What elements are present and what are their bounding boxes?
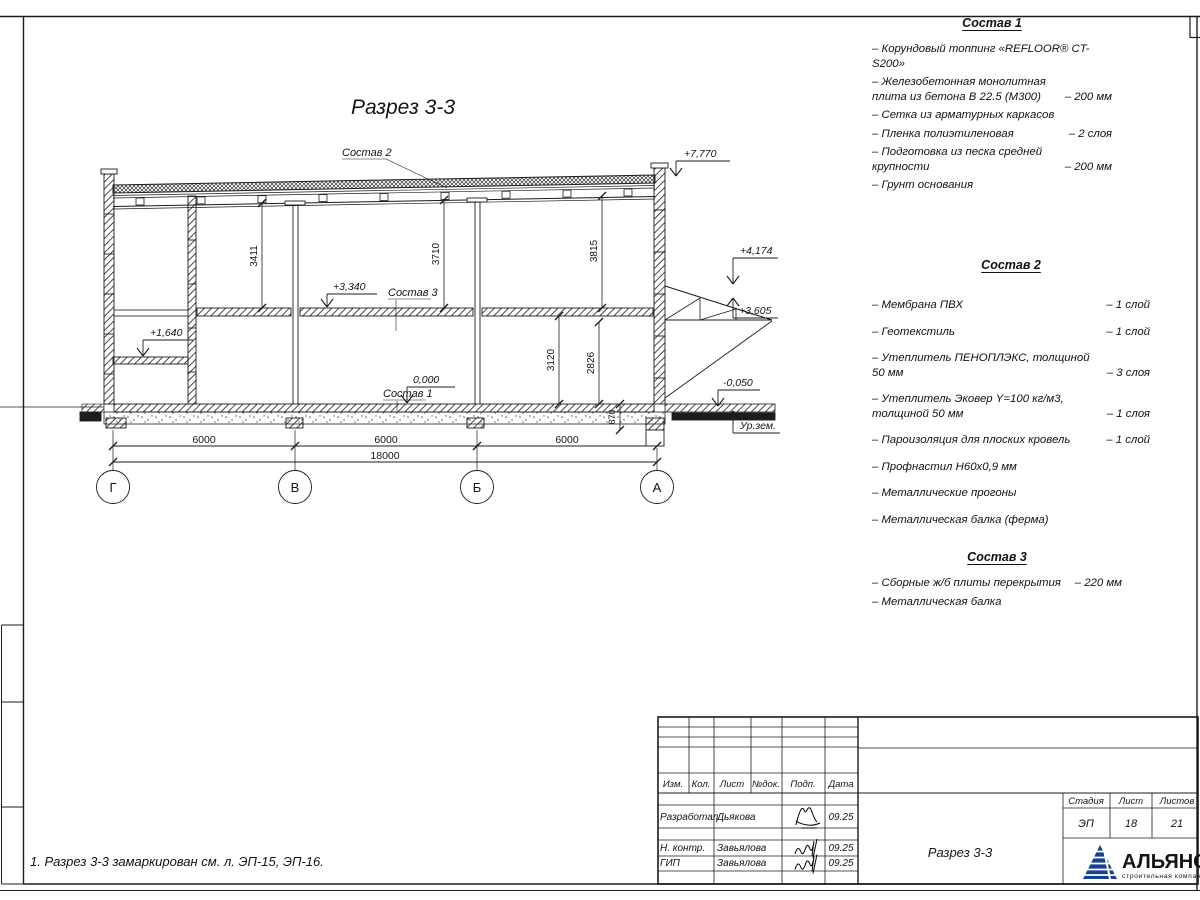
item-value: – 1 слой xyxy=(1098,298,1150,313)
elevation-canopy-bottom: +3,605 xyxy=(739,305,772,317)
axis-v: В xyxy=(291,480,300,495)
stamp-list-val: 18 xyxy=(1125,818,1138,830)
item-value: – 3 слоя xyxy=(1099,366,1150,381)
item-name: – Геотекстиль xyxy=(872,325,955,340)
list-item: – Пленка полиэтиленовая– 2 слоя xyxy=(872,127,1112,142)
drawing-sheet: Разрез 3-3 Состав 2 Состав 3 Состав 1 +7… xyxy=(0,0,1200,900)
item-name: – Утеплитель Эковер Y=100 кг/м3, толщино… xyxy=(872,392,1099,421)
label-sostav2: Состав 2 xyxy=(342,147,392,159)
sheet-note: 1. Разрез 3-3 замаркирован см. л. ЭП-15,… xyxy=(30,854,324,869)
item-name: – Утеплитель ПЕНОПЛЭКС, толщиной 50 мм xyxy=(872,351,1099,380)
list-item: – Профнастил Н60х0,9 мм xyxy=(872,460,1150,475)
elevation-slab: +3,340 xyxy=(333,281,366,293)
composition-2-block: Состав 2 – Мембрана ПВХ– 1 слой – Геотек… xyxy=(872,258,1150,539)
stamp-row2-name: Завьялова xyxy=(717,858,767,869)
elevation-zero: 0,000 xyxy=(413,374,439,386)
list-item: – Корундовый топпинг «REFLOOR® CT-S200» xyxy=(872,42,1112,71)
signature-icon xyxy=(795,839,817,858)
interior-wall xyxy=(188,196,196,404)
composition-3-block: Состав 3 – Сборные ж/б плиты перекрытия–… xyxy=(872,550,1122,613)
item-name: – Железобетонная монолитная плита из бет… xyxy=(872,75,1057,104)
list-item: – Подготовка из песка средней крупности–… xyxy=(872,145,1112,174)
mezzanine-slab-1640 xyxy=(113,357,188,364)
ground-level-label: Ур.зем. xyxy=(739,420,776,432)
logo-pyramid-icon xyxy=(1083,845,1117,879)
stamp-row1-name: Завьялова xyxy=(717,843,767,854)
composition-1-block: Состав 1 – Корундовый топпинг «REFLOOR® … xyxy=(872,16,1112,197)
item-name: – Пароизоляция для плоских кровель xyxy=(872,433,1070,448)
dim-3815: 3815 xyxy=(589,239,600,262)
list-item: – Железобетонная монолитная плита из бет… xyxy=(872,75,1112,104)
logo-name: АЛЬЯНС xyxy=(1122,851,1200,873)
stamp-col-ndok: №док. xyxy=(752,779,780,790)
item-value: – 200 мм xyxy=(1057,90,1112,105)
item-value: – 220 мм xyxy=(1067,576,1122,591)
list-item: – Металлическая балка xyxy=(872,595,1122,610)
item-value: – 1 слоя xyxy=(1099,407,1150,422)
stamp-row1-date: 09.25 xyxy=(828,843,853,854)
stamp-col-izm: Изм. xyxy=(663,779,683,790)
canopy-truss xyxy=(665,286,772,398)
stamp-row1-role: Н. контр. xyxy=(660,843,705,854)
list-item: – Пароизоляция для плоских кровель– 1 сл… xyxy=(872,433,1150,448)
composition-3-heading: Состав 3 xyxy=(872,550,1122,564)
item-name: – Пленка полиэтиленовая xyxy=(872,127,1014,142)
stamp-listov-val: 21 xyxy=(1170,818,1183,830)
company-logo: АЛЬЯНС строительная компания xyxy=(1083,845,1200,880)
dim-3411: 3411 xyxy=(249,245,260,267)
item-name: – Мембрана ПВХ xyxy=(872,298,963,313)
stamp-col-list: Лист xyxy=(719,779,745,790)
composition-1-heading: Состав 1 xyxy=(872,16,1112,30)
stamp-row2-role: ГИП xyxy=(660,858,681,869)
item-name: – Подготовка из песка средней крупности xyxy=(872,145,1057,174)
stamp-row0-role: Разработал xyxy=(660,811,719,823)
drawing-title: Разрез 3-3 xyxy=(351,96,455,119)
dim-3710: 3710 xyxy=(431,242,442,265)
stamp-listov-col: Листов xyxy=(1159,796,1195,807)
item-value: – 200 мм xyxy=(1057,160,1112,175)
stamp-col-kol: Кол. xyxy=(692,779,711,790)
axis-b: Б xyxy=(473,480,482,495)
signature-icon xyxy=(796,808,820,828)
columns xyxy=(285,198,487,404)
item-value: – 1 слой xyxy=(1098,325,1150,340)
stamp-stage-col: Стадия xyxy=(1068,796,1104,807)
list-item: – Мембрана ПВХ– 1 слой xyxy=(872,298,1150,313)
item-value: – 2 слоя xyxy=(1061,127,1112,142)
item-name: – Корундовый топпинг «REFLOOR® CT-S200» xyxy=(872,42,1104,71)
stamp-stage-val: ЭП xyxy=(1078,818,1094,830)
composition-2-heading: Состав 2 xyxy=(872,258,1150,272)
item-name: – Металлическая балка (ферма) xyxy=(872,513,1049,528)
dim-3120: 3120 xyxy=(546,348,557,371)
dim-span-1: 6000 xyxy=(192,434,216,446)
list-item: – Грунт основания xyxy=(872,178,1112,193)
stamp-list-col: Лист xyxy=(1118,796,1144,807)
elevation-mezzanine: +1,640 xyxy=(150,327,183,339)
elevation-canopy-top: +4,174 xyxy=(740,245,773,257)
stamp-col-podp: Подп. xyxy=(790,779,815,790)
stamp-col-data: Дата xyxy=(827,779,853,790)
signature-icons xyxy=(795,808,820,874)
dim-total: 18000 xyxy=(370,450,399,462)
stamp-row0-name: Дьякова xyxy=(716,812,756,823)
elevation-arrow-icons xyxy=(137,161,780,433)
dim-span-2: 6000 xyxy=(374,434,398,446)
item-name: – Сетка из арматурных каркасов xyxy=(872,108,1054,123)
item-name: – Металлическая балка xyxy=(872,595,1001,610)
left-wall xyxy=(101,169,117,404)
item-name: – Металлические прогоны xyxy=(872,486,1016,501)
axis-a: А xyxy=(653,480,662,495)
list-item: – Геотекстиль– 1 слой xyxy=(872,325,1150,340)
list-item: – Сетка из арматурных каркасов xyxy=(872,108,1112,123)
item-value: – 1 слой xyxy=(1098,433,1150,448)
label-sostav1: Состав 1 xyxy=(383,388,433,400)
list-item: – Утеплитель ПЕНОПЛЭКС, толщиной 50 мм– … xyxy=(872,351,1150,380)
elevation-top: +7,770 xyxy=(684,148,717,160)
item-name: – Сборные ж/б плиты перекрытия xyxy=(872,576,1061,591)
item-name: – Профнастил Н60х0,9 мм xyxy=(872,460,1017,475)
dim-670: 670 xyxy=(607,409,617,424)
stamp-row2-date: 09.25 xyxy=(828,858,853,869)
axis-g: Г xyxy=(109,480,116,495)
list-item: – Металлическая балка (ферма) xyxy=(872,513,1150,528)
dim-span-3: 6000 xyxy=(555,434,579,446)
label-sostav3: Состав 3 xyxy=(388,287,439,299)
list-item: – Металлические прогоны xyxy=(872,486,1150,501)
logo-tagline: строительная компания xyxy=(1122,873,1200,880)
item-name: – Грунт основания xyxy=(872,178,973,193)
stamp-drawing-title: Разрез 3-3 xyxy=(928,845,993,860)
dim-2826: 2826 xyxy=(586,351,597,374)
list-item: – Сборные ж/б плиты перекрытия– 220 мм xyxy=(872,576,1122,591)
axis-bubbles xyxy=(97,471,674,504)
list-item: – Утеплитель Эковер Y=100 кг/м3, толщино… xyxy=(872,392,1150,421)
stamp-row0-date: 09.25 xyxy=(828,812,853,823)
elevation-ground: -0,050 xyxy=(723,377,753,389)
